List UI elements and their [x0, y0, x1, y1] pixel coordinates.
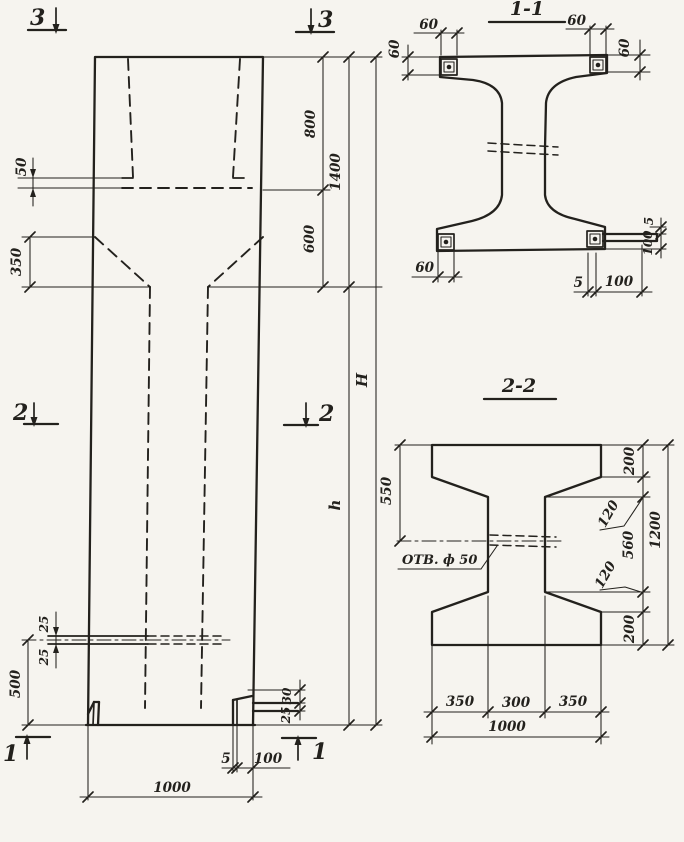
hidden-web-right	[201, 287, 208, 708]
elevation-dim-texts: 50 350 800 1400 600 H h 25 25 500 30 25 …	[8, 109, 371, 796]
drawing-sheet: 3 3 2 2	[0, 0, 684, 842]
dim-200-top: 200	[622, 446, 638, 476]
dim-1200: 1200	[648, 511, 664, 549]
base-foot-left	[88, 702, 99, 725]
marker-2-right: 2	[284, 401, 334, 428]
marker-2-right-label: 2	[318, 401, 334, 427]
section-2-2-ticks	[395, 440, 673, 742]
arrow-50-top	[30, 169, 36, 178]
section-1-1-ticks	[403, 24, 666, 297]
dim-30: 30	[280, 687, 294, 704]
marker-2-left-arrow	[31, 417, 38, 427]
section-2-2-dim-texts: 550 200 120 560 120 200 1200 350 300 350…	[379, 446, 664, 735]
hole-callout-text: ОТВ. ф 50	[402, 553, 477, 568]
plate-bottom-left-dot	[444, 240, 449, 245]
hidden-taper-right	[208, 237, 263, 287]
hidden-top-recess	[122, 59, 252, 188]
section-2-2-view: 2-2 ОТВ. ф 50	[379, 375, 674, 744]
marker-3-right-label: 3	[318, 7, 333, 33]
dim-300: 300	[502, 695, 531, 711]
marker-2-left: 2	[12, 400, 58, 427]
dim-200-bottom: 200	[622, 614, 638, 644]
column-drawing: 3 3 2 2	[0, 0, 684, 842]
section-1-1-title: 1-1	[510, 0, 544, 20]
dim-25-upper: 25	[37, 616, 51, 634]
arrow-50-bottom	[30, 188, 36, 197]
dim-800: 800	[303, 109, 319, 138]
arrow-25-top	[53, 627, 59, 636]
dim-350-left: 350	[446, 694, 475, 710]
hidden-web	[95, 237, 263, 708]
dim-H: H	[353, 372, 371, 388]
marker-3-right: 3	[296, 7, 334, 35]
section-markers: 3 3 2 2	[3, 5, 334, 767]
dim-350-right: 350	[559, 694, 588, 710]
dim-50: 50	[14, 157, 30, 176]
elevation-view: 3 3 2 2	[3, 5, 382, 802]
section-2-2-outline	[432, 445, 601, 645]
dim-1000-22: 1000	[488, 719, 526, 735]
dim-60-tl-w: 60	[419, 17, 438, 33]
section-1-1-view: 1-1	[387, 0, 666, 297]
marker-1-left-label: 1	[3, 741, 18, 767]
plate-bottom-right-dot	[593, 237, 598, 242]
marker-1-left: 1	[3, 734, 50, 767]
web-hole-bottom	[488, 151, 558, 155]
marker-2-right-arrow	[303, 418, 310, 428]
lower-slot	[22, 636, 230, 644]
dim-60-tr-d: 60	[617, 38, 633, 57]
hidden-prong-left	[128, 59, 133, 177]
dim-h: h	[326, 500, 344, 511]
dim-5-r: 5	[642, 217, 656, 225]
section-2-2-dim-lines	[400, 445, 668, 737]
dim-1400: 1400	[328, 153, 344, 191]
dim-100-b: 100	[605, 274, 634, 290]
marker-3-left: 3	[28, 5, 66, 34]
dim-5: 5	[221, 751, 230, 767]
arrow-25-bottom	[53, 644, 59, 653]
dim-600: 600	[302, 224, 318, 253]
dim-25-lower: 25	[37, 649, 51, 667]
marker-2-left-label: 2	[12, 400, 28, 426]
plate-top-left-dot	[447, 65, 452, 70]
dim-60-tl-d: 60	[387, 39, 403, 58]
foot-left-plate-a	[93, 702, 94, 725]
dim-1000: 1000	[153, 780, 191, 796]
hidden-prong-right	[233, 59, 240, 177]
section-1-1-web-hole	[488, 143, 558, 155]
foot-right-top	[233, 696, 252, 700]
section-2-2-hole	[397, 535, 561, 547]
dim-25-plate: 25	[279, 707, 293, 725]
foot-left-plate-b	[98, 702, 99, 725]
marker-3-right-arrow	[308, 25, 315, 35]
marker-3-left-label: 3	[30, 5, 45, 31]
dim-560: 560	[621, 530, 637, 559]
marker-1-right-label: 1	[312, 739, 327, 765]
section-1-1-dim-lines	[408, 29, 661, 292]
plate-top-right-dot	[596, 63, 601, 68]
dim-550: 550	[379, 476, 395, 505]
dim-100: 100	[254, 751, 283, 767]
section-2-2-title: 2-2	[501, 375, 536, 397]
dim-350: 350	[9, 247, 25, 276]
dim-100-r: 100	[641, 230, 655, 256]
section-2-2-extensions	[395, 445, 674, 744]
marker-1-right: 1	[282, 735, 327, 765]
dim-120-bottom: 120	[592, 558, 620, 591]
dim-500: 500	[8, 669, 24, 698]
marker-1-right-arrow	[295, 735, 302, 745]
column-outline	[88, 57, 263, 725]
hidden-taper-left	[95, 237, 150, 287]
dim-60-bl: 60	[415, 260, 434, 276]
marker-1-left-arrow	[24, 734, 31, 744]
dim-5-b: 5	[574, 275, 583, 291]
hole-callout: ОТВ. ф 50	[398, 546, 497, 569]
dim-120-top: 120	[595, 497, 623, 530]
web-hole-top	[488, 143, 558, 147]
dim-60-tr-w: 60	[567, 13, 586, 29]
